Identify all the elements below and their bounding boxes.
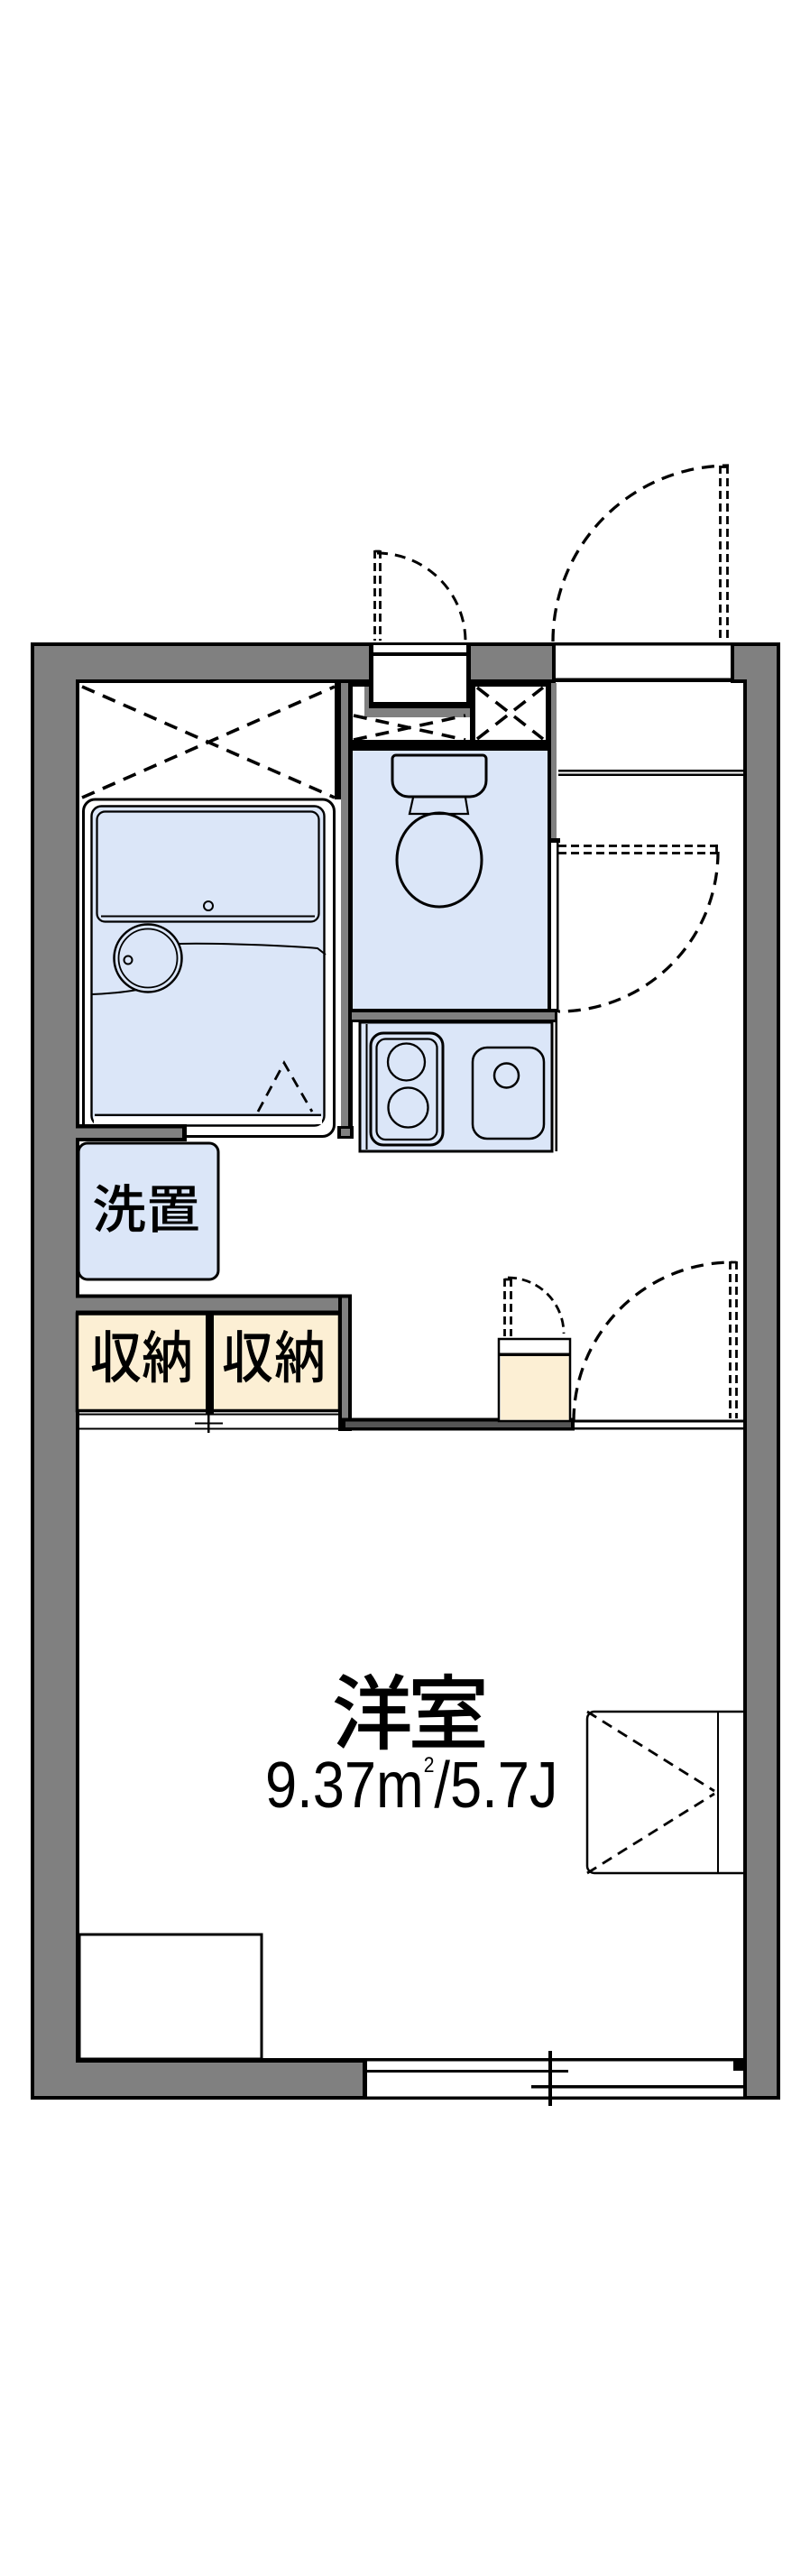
svg-text:9.37m2/5.7J: 9.37m2/5.7J <box>265 1750 557 1822</box>
